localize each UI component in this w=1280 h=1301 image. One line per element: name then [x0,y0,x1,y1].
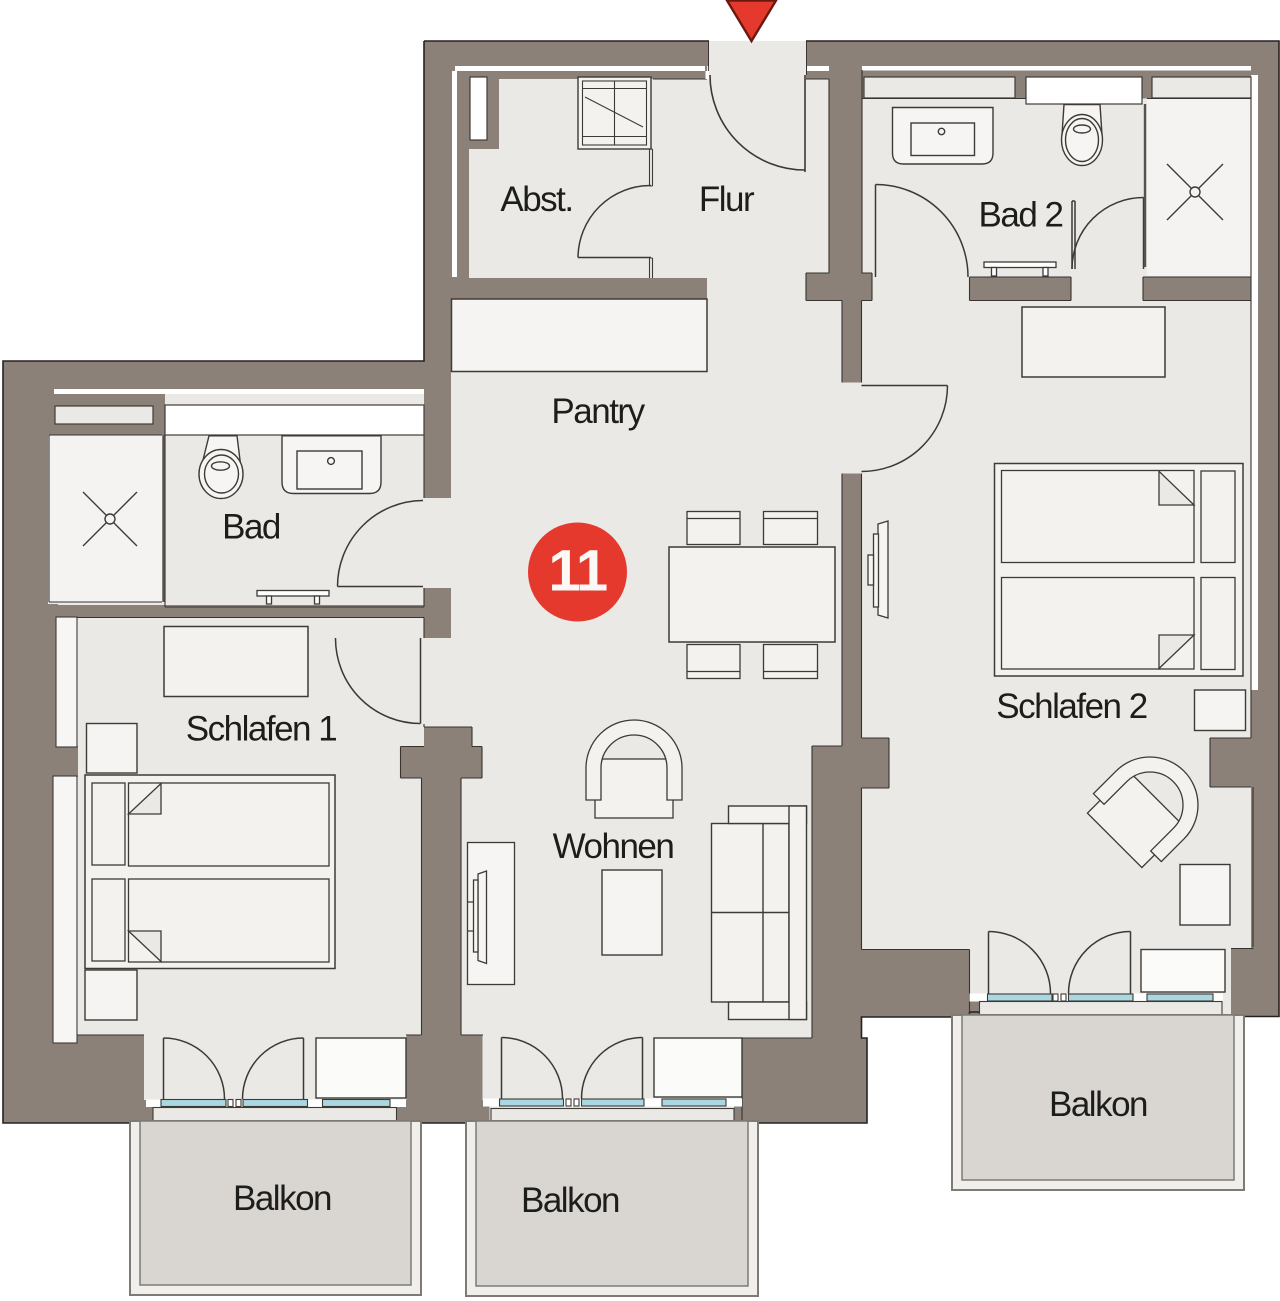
svg-text:Wohnen: Wohnen [553,827,674,866]
svg-text:Abst.: Abst. [500,180,572,219]
svg-text:Balkon: Balkon [1049,1085,1147,1124]
svg-text:11: 11 [548,539,607,604]
svg-text:Bad 2: Bad 2 [979,196,1063,235]
svg-text:Pantry: Pantry [551,392,645,431]
svg-text:Balkon: Balkon [521,1181,619,1220]
svg-text:Schlafen 2: Schlafen 2 [996,687,1146,726]
svg-text:Schlafen 1: Schlafen 1 [186,710,336,749]
svg-text:Flur: Flur [699,180,755,219]
svg-text:Balkon: Balkon [233,1179,331,1218]
svg-text:Bad: Bad [222,508,280,547]
